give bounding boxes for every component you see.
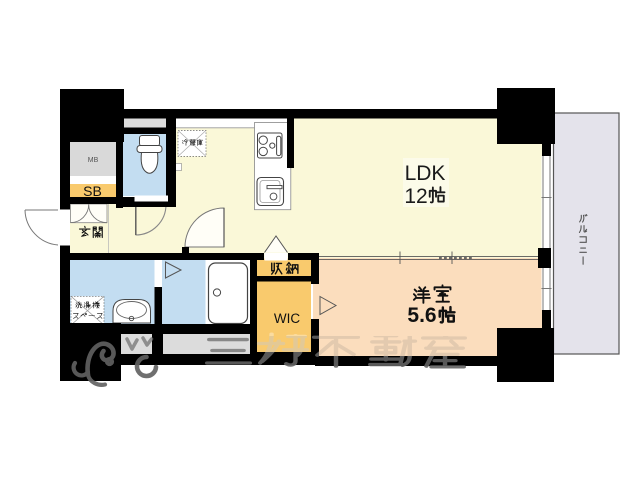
svg-text:SB: SB <box>83 183 102 199</box>
svg-text:12: 12 <box>404 185 427 208</box>
svg-text:LDK: LDK <box>405 162 446 185</box>
svg-text:MB: MB <box>88 157 99 164</box>
svg-text:5.6: 5.6 <box>407 304 436 327</box>
svg-text:WIC: WIC <box>274 311 300 326</box>
